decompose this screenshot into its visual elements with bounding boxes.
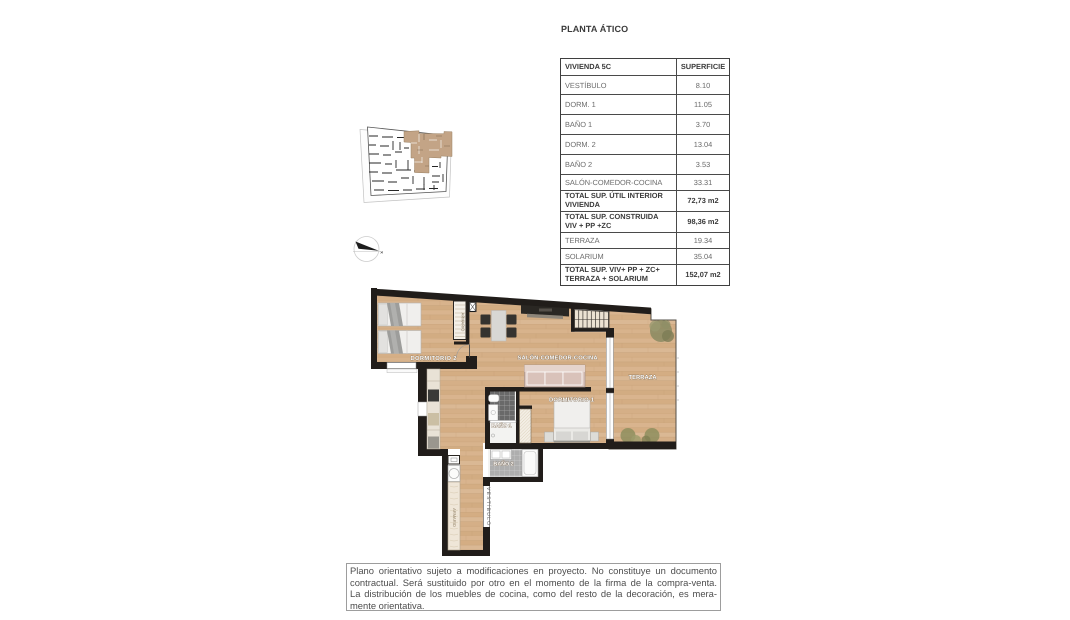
svg-text:BAÑO 1: BAÑO 1	[491, 423, 511, 430]
svg-text:BAÑO 2: BAÑO 2	[493, 461, 513, 468]
svg-text:ARMARIO: ARMARIO	[461, 313, 466, 332]
svg-text:VESTÍBULO: VESTÍBULO	[485, 487, 492, 525]
svg-text:TERRAZA: TERRAZA	[629, 375, 658, 381]
svg-text:SALÓN-COMEDOR-COCINA: SALÓN-COMEDOR-COCINA	[518, 354, 599, 362]
svg-text:DORMITORIO 1: DORMITORIO 1	[549, 397, 595, 404]
svg-text:ARMARIO: ARMARIO	[452, 508, 457, 527]
svg-text:DORMITORIO 2: DORMITORIO 2	[411, 355, 457, 362]
